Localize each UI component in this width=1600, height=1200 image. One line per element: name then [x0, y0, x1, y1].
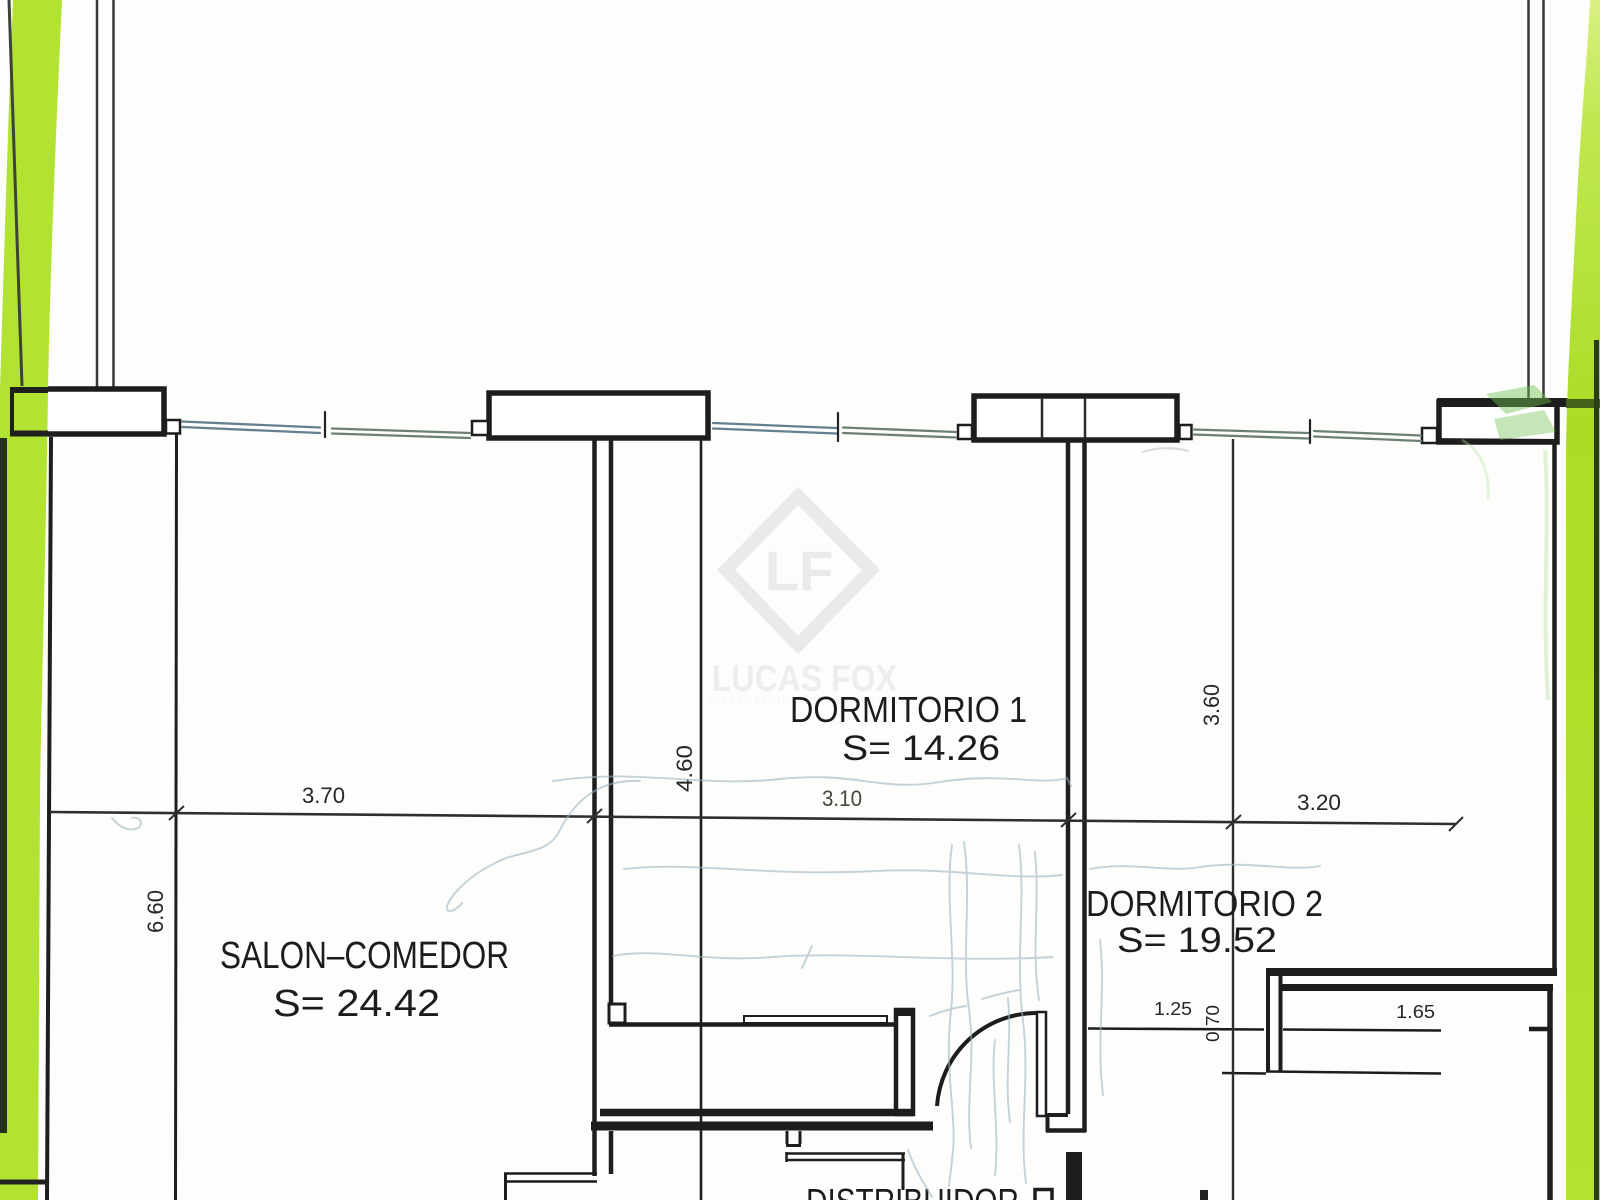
svg-text:3.70: 3.70	[302, 783, 345, 808]
svg-text:6.60: 6.60	[143, 890, 168, 933]
svg-text:0.70: 0.70	[1203, 1005, 1223, 1042]
svg-text:DISTRIBUIDOR: DISTRIBUIDOR	[806, 1181, 1019, 1200]
svg-text:S= 24.42: S= 24.42	[273, 983, 440, 1025]
svg-text:1.65: 1.65	[1396, 1002, 1435, 1022]
svg-text:3.10: 3.10	[822, 786, 862, 811]
svg-text:DORMITORIO 1: DORMITORIO 1	[790, 689, 1027, 730]
svg-text:DORMITORIO 2: DORMITORIO 2	[1086, 883, 1323, 924]
svg-text:1.25: 1.25	[1154, 999, 1192, 1019]
svg-text:S= 19.52: S= 19.52	[1117, 921, 1277, 960]
svg-text:LF: LF	[765, 539, 833, 602]
svg-text:3.60: 3.60	[1199, 684, 1224, 726]
svg-text:S= 14.26: S= 14.26	[842, 729, 1000, 768]
svg-text:4.60: 4.60	[672, 745, 697, 792]
svg-text:SALON–COMEDOR: SALON–COMEDOR	[220, 935, 509, 977]
svg-text:3.20: 3.20	[1297, 790, 1341, 815]
